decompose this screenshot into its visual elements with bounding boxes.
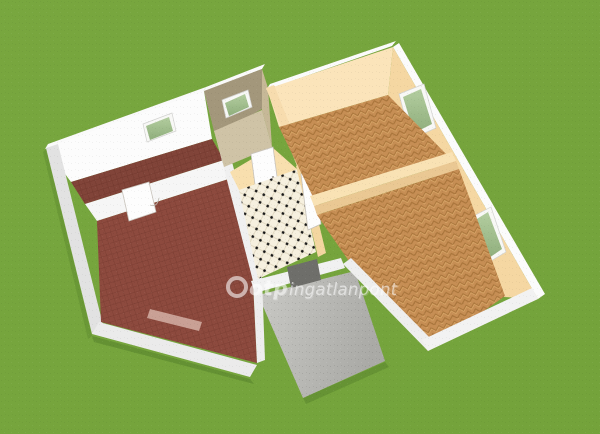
floor-plan-canvas: otp otp ingatlanpont ingatlanpont xyxy=(0,0,600,434)
grain-overlay xyxy=(0,0,600,434)
watermark-brand: otp xyxy=(249,276,288,300)
floor-plan-render: otp otp ingatlanpont ingatlanpont xyxy=(0,0,600,434)
watermark: otp otp ingatlanpont ingatlanpont xyxy=(228,276,399,301)
watermark-suffix: ingatlanpont xyxy=(289,280,398,299)
